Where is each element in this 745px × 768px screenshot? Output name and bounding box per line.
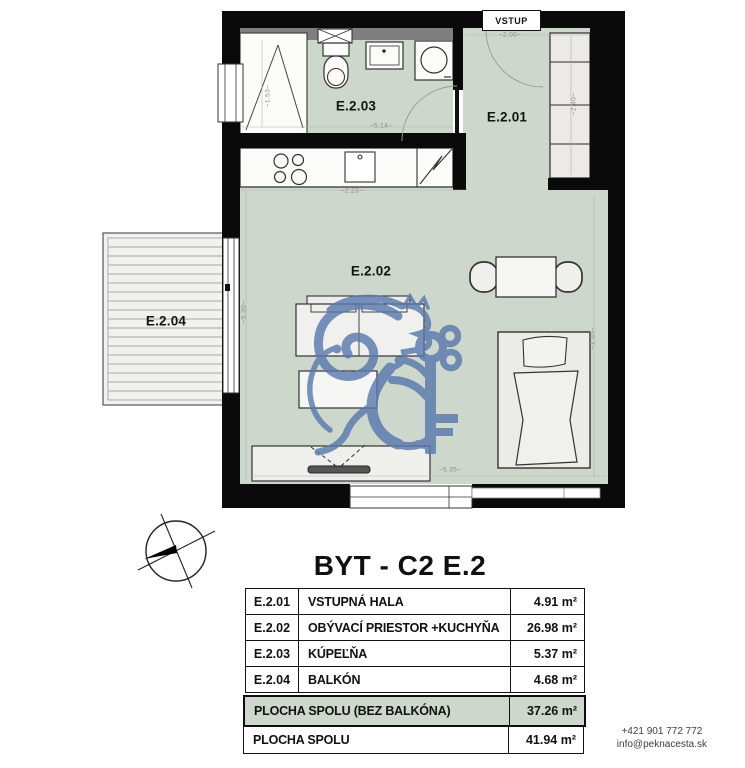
room-name: OBÝVACÍ PRIESTOR +KUCHYŇA xyxy=(299,615,511,640)
table-row: E.2.02 OBÝVACÍ PRIESTOR +KUCHYŇA 26.98 m… xyxy=(246,615,584,641)
area-table: E.2.01 VSTUPNÁ HALA 4.91 m² E.2.02 OBÝVA… xyxy=(245,588,585,693)
summary-row-total: PLOCHA SPOLU 41.94 m² xyxy=(243,726,584,754)
room-name: BALKÓN xyxy=(299,667,511,692)
chair-right xyxy=(554,262,582,292)
floorplan-page: VSTUP E.2.01 E.2.02 E.2.03 E.2.04 ~2.00~… xyxy=(0,0,745,768)
dim-bed-width: ~1.65~ xyxy=(590,327,597,350)
door-handle xyxy=(225,284,230,291)
living-window xyxy=(350,486,472,508)
dining-set xyxy=(470,257,582,297)
tv-icon xyxy=(308,466,370,473)
window-sill xyxy=(472,488,600,498)
dim-living-height: ~5.30~ xyxy=(241,301,248,324)
pillow xyxy=(523,336,567,367)
balcony-door xyxy=(223,238,239,393)
bath-sink-icon xyxy=(366,42,403,69)
room-name: VSTUPNÁ HALA xyxy=(299,589,511,614)
room-label-bath: E.2.03 xyxy=(336,99,376,114)
shower-icon xyxy=(240,33,307,137)
room-area: 26.98 m² xyxy=(511,615,584,640)
blanket xyxy=(514,371,578,465)
room-label-hall: E.2.01 xyxy=(487,110,527,125)
kitchen-counter xyxy=(240,148,453,187)
room-code: E.2.02 xyxy=(246,615,299,640)
summary-label: PLOCHA SPOLU (BEZ BALKÓNA) xyxy=(245,697,510,725)
summary-label: PLOCHA SPOLU xyxy=(244,727,509,753)
room-area: 4.68 m² xyxy=(511,667,584,692)
summary-area: 37.26 m² xyxy=(510,697,584,725)
dim-kitchen-width: ~2.23~ xyxy=(341,188,364,195)
room-area: 5.37 m² xyxy=(511,641,584,666)
dining-table xyxy=(496,257,556,297)
entrance-label-box: VSTUP xyxy=(482,10,541,31)
table-row: E.2.04 BALKÓN 4.68 m² xyxy=(246,667,584,692)
dim-bath-height: ~1.53~ xyxy=(265,85,272,108)
toilet-icon xyxy=(323,43,349,88)
dim-bath-width: ~5.14~ xyxy=(370,123,393,130)
table-row: E.2.01 VSTUPNÁ HALA 4.91 m² xyxy=(246,589,584,615)
compass-needle xyxy=(144,545,177,559)
contact-phone: +421 901 772 772 xyxy=(617,725,707,738)
compass-icon xyxy=(138,514,215,588)
entrance-label: VSTUP xyxy=(495,16,528,26)
tv-cabinet xyxy=(252,445,430,481)
room-code: E.2.04 xyxy=(246,667,299,692)
room-code: E.2.03 xyxy=(246,641,299,666)
room-label-living: E.2.02 xyxy=(351,264,391,279)
contact-block: +421 901 772 772 info@peknacesta.sk xyxy=(617,725,707,751)
vent-icon xyxy=(318,29,352,43)
dim-living-width: ~5.35~ xyxy=(439,467,462,474)
room-name: KÚPEĽŇA xyxy=(299,641,511,666)
room-label-balcony: E.2.04 xyxy=(146,314,186,329)
room-area: 4.91 m² xyxy=(511,589,584,614)
kitchen-sink-icon xyxy=(345,152,375,182)
table-row: E.2.03 KÚPEĽŇA 5.37 m² xyxy=(246,641,584,667)
summary-area: 41.94 m² xyxy=(509,727,583,753)
contact-email: info@peknacesta.sk xyxy=(617,738,707,751)
bed xyxy=(498,332,590,468)
summary-row-total-no-balcony: PLOCHA SPOLU (BEZ BALKÓNA) 37.26 m² xyxy=(243,695,586,727)
bathroom-window xyxy=(218,64,243,122)
washing-machine-icon xyxy=(415,41,453,80)
room-code: E.2.01 xyxy=(246,589,299,614)
page-title: BYT - C2 E.2 xyxy=(314,550,486,582)
dim-wardrobe-height: ~2.40~ xyxy=(571,93,578,116)
chair-left xyxy=(470,262,498,292)
dim-entry-width: ~2.00~ xyxy=(499,32,522,39)
